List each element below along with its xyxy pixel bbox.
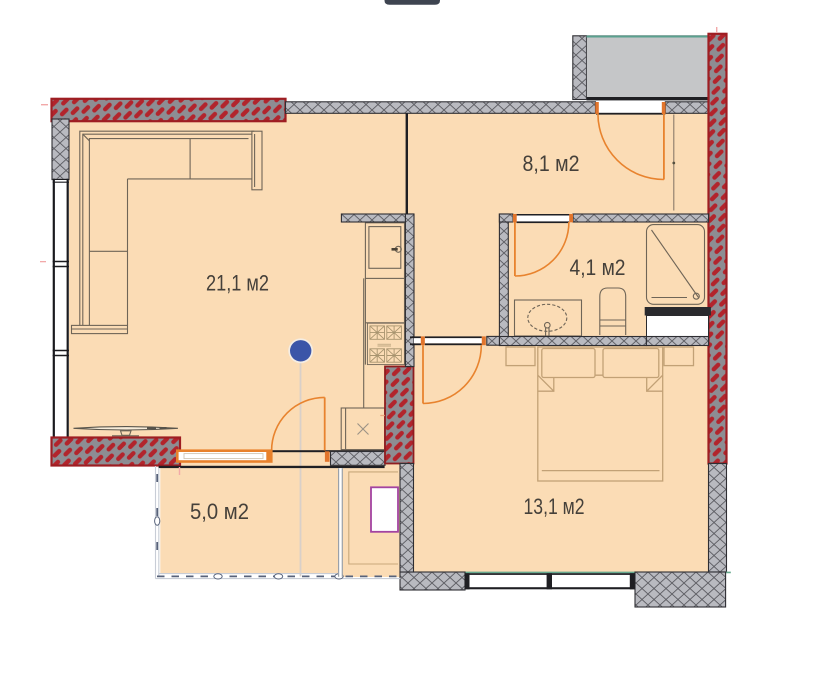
svg-text:13,1 м2: 13,1 м2 (524, 494, 585, 519)
svg-text:4,1 м2: 4,1 м2 (570, 255, 626, 280)
svg-text:5,0 м2: 5,0 м2 (190, 499, 249, 524)
svg-text:8,1 м2: 8,1 м2 (523, 151, 580, 176)
svg-text:21,1 м2: 21,1 м2 (206, 271, 269, 296)
